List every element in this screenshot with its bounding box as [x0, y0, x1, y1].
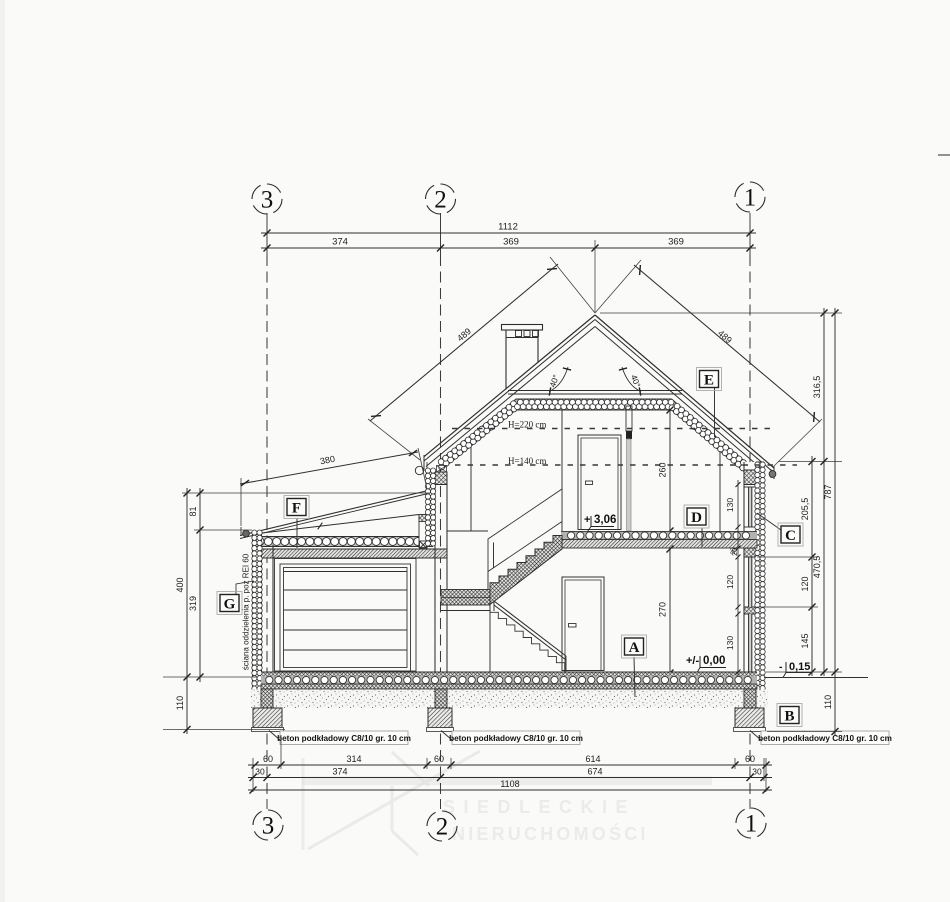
- svg-text:H=140 cm: H=140 cm: [508, 456, 546, 466]
- svg-text:270: 270: [658, 602, 668, 617]
- svg-text:beton podkładowy C8/10 gr. 10: beton podkładowy C8/10 gr. 10 cm: [758, 734, 892, 743]
- svg-text:674: 674: [587, 767, 602, 777]
- svg-text:beton podkładowy C8/10 gr. 10: beton podkładowy C8/10 gr. 10 cm: [449, 734, 583, 743]
- svg-text:0,00: 0,00: [703, 655, 725, 667]
- svg-text:374: 374: [332, 767, 347, 777]
- svg-text:319: 319: [188, 596, 198, 611]
- svg-text:3: 3: [261, 187, 274, 214]
- svg-text:260: 260: [658, 462, 668, 477]
- svg-text:1108: 1108: [500, 779, 519, 789]
- svg-text:787: 787: [823, 484, 833, 499]
- svg-text:614: 614: [585, 754, 600, 764]
- svg-text:1: 1: [744, 185, 757, 212]
- svg-text:60: 60: [263, 754, 273, 764]
- svg-text:60: 60: [434, 754, 444, 764]
- svg-text:110: 110: [823, 695, 833, 709]
- svg-text:F: F: [292, 501, 301, 517]
- svg-text:316,5: 316,5: [812, 376, 822, 399]
- svg-text:314: 314: [346, 754, 361, 764]
- svg-text:470,5: 470,5: [812, 556, 822, 579]
- svg-text:3: 3: [262, 813, 275, 840]
- svg-text:374: 374: [332, 237, 348, 248]
- svg-text:2: 2: [436, 814, 449, 841]
- svg-text:beton podkładowy C8/10 gr. 10: beton podkładowy C8/10 gr. 10 cm: [277, 734, 411, 743]
- svg-text:SIEDLECKIE: SIEDLECKIE: [443, 797, 636, 817]
- svg-text:30: 30: [255, 767, 265, 777]
- svg-text:2: 2: [434, 187, 447, 214]
- svg-text:H=220 cm: H=220 cm: [508, 420, 546, 430]
- svg-text:A: A: [629, 640, 640, 656]
- svg-text:130: 130: [725, 636, 735, 650]
- svg-text:+: +: [584, 514, 590, 526]
- svg-text:110: 110: [175, 696, 185, 710]
- svg-text:369: 369: [503, 237, 519, 248]
- svg-text:1: 1: [745, 811, 758, 838]
- svg-text:1112: 1112: [498, 222, 518, 233]
- svg-text:205,5: 205,5: [800, 498, 810, 521]
- svg-text:400: 400: [175, 577, 185, 592]
- svg-text:C: C: [785, 528, 796, 544]
- svg-text:81: 81: [188, 506, 198, 516]
- svg-text:30: 30: [752, 767, 762, 777]
- svg-text:D: D: [691, 510, 702, 526]
- svg-text:ściana oddzielenia p. poż REI: ściana oddzielenia p. poż REI 60: [242, 553, 251, 670]
- svg-text:+/-: +/-: [686, 655, 699, 667]
- svg-text:145: 145: [800, 633, 810, 648]
- svg-text:60: 60: [745, 754, 755, 764]
- svg-text:369: 369: [668, 237, 684, 248]
- svg-text:120: 120: [725, 575, 735, 589]
- svg-text:B: B: [784, 709, 794, 725]
- svg-text:120: 120: [800, 576, 810, 591]
- svg-text:130: 130: [725, 498, 735, 512]
- svg-text:-: -: [779, 661, 783, 673]
- svg-text:0,15: 0,15: [789, 661, 810, 673]
- svg-text:E: E: [704, 373, 714, 389]
- svg-text:G: G: [224, 597, 236, 613]
- svg-text:3,06: 3,06: [594, 514, 616, 526]
- svg-text:NIERUCHOMOŚCI: NIERUCHOMOŚCI: [452, 823, 649, 844]
- svg-text:20: 20: [730, 547, 737, 555]
